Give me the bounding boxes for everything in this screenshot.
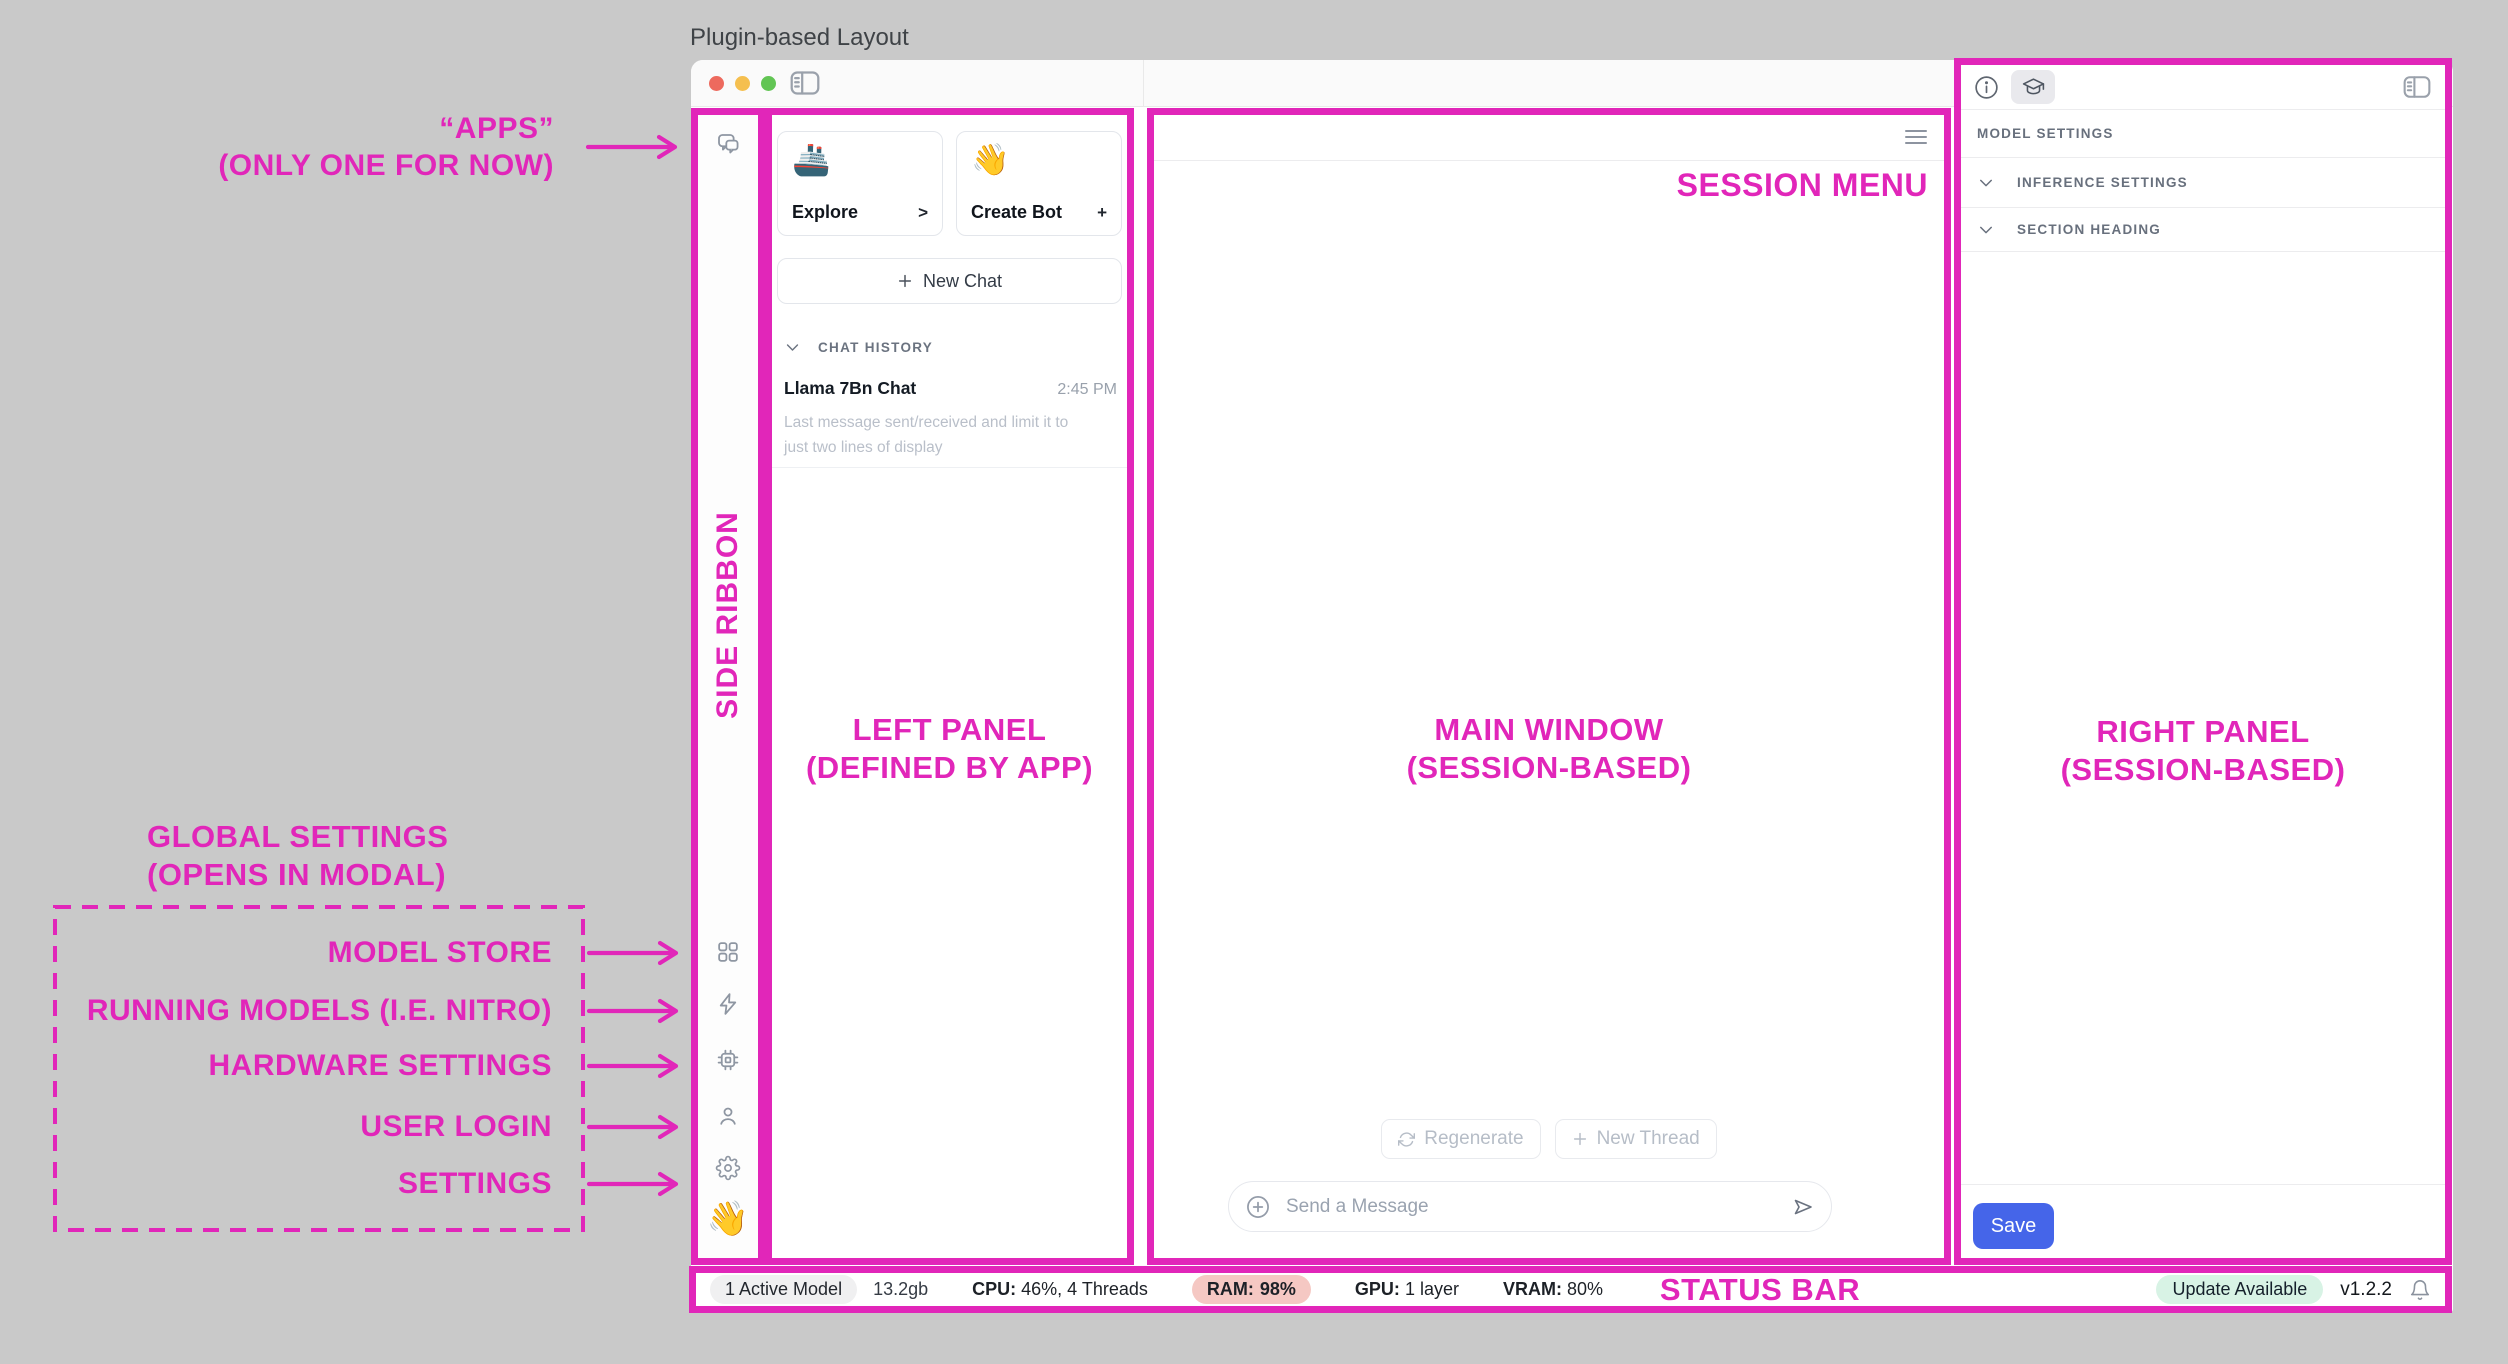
main-window-annotation: MAIN WINDOW (SESSION-BASED): [1154, 711, 1944, 787]
chat-item-title: Llama 7Bn Chat: [784, 378, 916, 399]
chat-app-icon[interactable]: [715, 131, 742, 158]
side-ribbon: SIDE RIBBON: [691, 108, 765, 1265]
ram-stat-badge: RAM:98%: [1192, 1275, 1311, 1304]
chat-history-header[interactable]: CHAT HISTORY: [784, 339, 933, 356]
graduation-cap-icon: [2021, 75, 2046, 100]
apps-annotation: “APPS” (ONLY ONE FOR NOW): [218, 110, 554, 184]
status-bar-annotation: STATUS BAR: [1660, 1272, 1860, 1308]
right-panel-annotation: RIGHT PANEL (SESSION-BASED): [1961, 713, 2445, 789]
refresh-icon: [1398, 1131, 1415, 1148]
plus-icon: [897, 273, 913, 289]
create-bot-plus: +: [1097, 203, 1107, 223]
section-heading-section[interactable]: SECTION HEADING: [1961, 208, 2445, 252]
chevron-down-icon: [784, 339, 801, 356]
chat-list-item[interactable]: Llama 7Bn Chat 2:45 PM: [784, 378, 1117, 399]
left-panel-cards: 🚢 Explore > 👋 Create Bot +: [777, 131, 1122, 236]
info-icon[interactable]: [1973, 74, 2000, 101]
model-settings-heading: MODEL SETTINGS: [1961, 110, 2445, 158]
create-bot-card-label: Create Bot: [971, 202, 1062, 223]
settings-gear-icon[interactable]: [716, 1156, 741, 1181]
side-ribbon-annotation: SIDE RIBBON: [711, 511, 745, 719]
chat-item-time: 2:45 PM: [1057, 381, 1117, 399]
design-canvas: Plugin-based Layout: [0, 0, 2508, 1364]
status-bar: 1 Active Model 13.2gb CPU: 46%, 4 Thread…: [689, 1266, 2452, 1313]
user-login-icon[interactable]: [716, 1104, 741, 1129]
chat-item-preview: Last message sent/received and limit it …: [784, 410, 1083, 460]
user-login-arrow: [586, 1114, 686, 1140]
left-panel-annotation: LEFT PANEL (DEFINED BY APP): [772, 711, 1127, 787]
message-input[interactable]: [1284, 1195, 1778, 1219]
hardware-settings-annotation: HARDWARE SETTINGS: [208, 1051, 552, 1081]
panel-toggle-icon[interactable]: [2401, 74, 2433, 100]
titlebar-divider: [1143, 60, 1144, 106]
model-store-annotation: MODEL STORE: [328, 938, 552, 968]
running-models-arrow: [586, 998, 686, 1024]
close-button[interactable]: [709, 76, 724, 91]
chevron-down-icon: [1977, 221, 1995, 239]
minimize-button[interactable]: [735, 76, 750, 91]
wave-emoji-icon: 👋: [971, 144, 1107, 175]
bell-icon[interactable]: [2409, 1279, 2431, 1301]
chevron-down-icon: [1977, 174, 1995, 192]
zoom-button[interactable]: [761, 76, 776, 91]
plus-icon: [1572, 1131, 1588, 1147]
apps-arrow: [585, 134, 685, 160]
list-divider: [772, 467, 1127, 468]
explore-card-label: Explore: [792, 202, 858, 223]
inference-settings-section[interactable]: INFERENCE SETTINGS: [1961, 158, 2445, 208]
save-button[interactable]: Save: [1973, 1203, 2054, 1249]
hardware-settings-arrow: [586, 1053, 686, 1079]
attach-plus-icon[interactable]: [1245, 1194, 1271, 1220]
new-chat-button[interactable]: New Chat: [777, 258, 1122, 304]
active-model-badge: 1 Active Model: [710, 1275, 857, 1304]
cpu-stat: CPU: 46%, 4 Threads: [972, 1279, 1148, 1300]
running-models-icon[interactable]: [716, 992, 741, 1017]
hardware-settings-icon[interactable]: [716, 1048, 741, 1073]
create-bot-card[interactable]: 👋 Create Bot +: [956, 131, 1122, 236]
wave-app-icon[interactable]: 👋: [707, 1202, 749, 1236]
explore-chevron: >: [918, 203, 928, 223]
vram-stat: VRAM: 80%: [1503, 1279, 1603, 1300]
main-window: SESSION MENU MAIN WINDOW (SESSION-BASED)…: [1147, 108, 1951, 1265]
new-chat-label: New Chat: [923, 271, 1002, 292]
global-settings-annotation: GLOBAL SETTINGS (OPENS IN MODAL): [147, 818, 448, 894]
sidebar-toggle-icon[interactable]: [787, 69, 823, 102]
explore-card[interactable]: 🚢 Explore >: [777, 131, 943, 236]
right-panel-header: [1961, 65, 2445, 110]
message-composer: [1228, 1181, 1832, 1232]
version-label: v1.2.2: [2340, 1279, 2392, 1301]
right-panel: MODEL SETTINGS INFERENCE SETTINGS SECTIO…: [1954, 58, 2452, 1265]
regenerate-button[interactable]: Regenerate: [1381, 1119, 1540, 1159]
thread-actions: Regenerate New Thread: [1154, 1119, 1944, 1159]
right-panel-footer-divider: [1961, 1184, 2445, 1185]
update-available-badge[interactable]: Update Available: [2156, 1275, 2323, 1304]
settings-arrow: [586, 1171, 686, 1197]
model-settings-tab[interactable]: [2011, 70, 2055, 104]
running-models-annotation: RUNNING MODELS (I.E. NITRO): [87, 996, 552, 1026]
page-title: Plugin-based Layout: [690, 24, 909, 52]
new-thread-button[interactable]: New Thread: [1555, 1119, 1717, 1159]
main-window-header: [1154, 115, 1944, 161]
ship-emoji-icon: 🚢: [792, 144, 928, 175]
send-icon[interactable]: [1791, 1195, 1815, 1219]
settings-annotation: SETTINGS: [398, 1169, 552, 1199]
model-store-arrow: [586, 940, 686, 966]
session-menu-icon[interactable]: [1904, 127, 1928, 152]
model-store-icon[interactable]: [716, 940, 741, 965]
memory-usage: 13.2gb: [873, 1279, 928, 1300]
user-login-annotation: USER LOGIN: [360, 1112, 552, 1142]
session-menu-annotation: SESSION MENU: [1677, 167, 1928, 204]
gpu-stat: GPU: 1 layer: [1355, 1279, 1459, 1300]
left-panel: 🚢 Explore > 👋 Create Bot + New Chat: [765, 108, 1134, 1265]
